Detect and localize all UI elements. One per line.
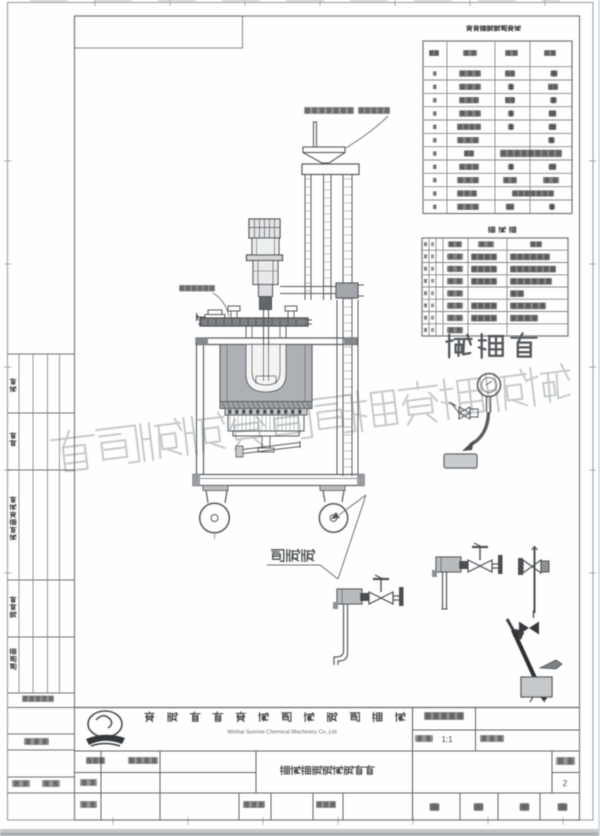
svg-text:2: 2 [563, 779, 568, 788]
svg-text:1:1: 1:1 [441, 735, 453, 744]
svg-text:Weihai Sunrise Chemical Machin: Weihai Sunrise Chemical Machinery Co.,Lt… [227, 730, 336, 736]
